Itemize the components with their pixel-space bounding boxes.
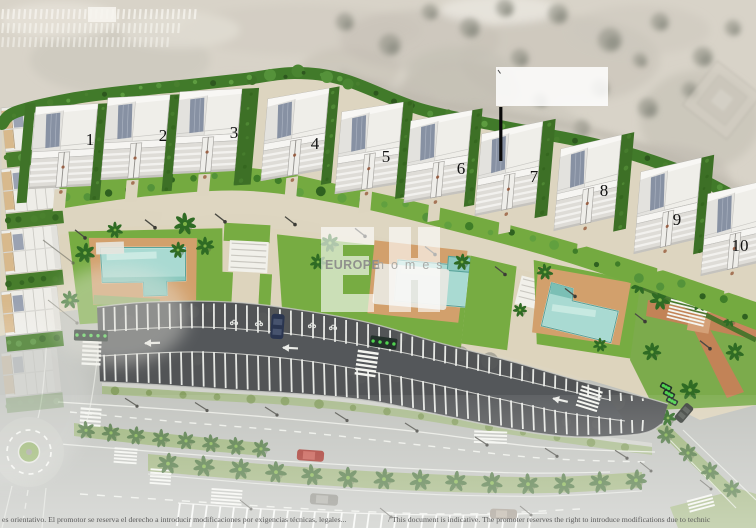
svg-text:EUROPE: EUROPE	[325, 258, 380, 272]
svg-text:5: 5	[382, 147, 391, 166]
svg-text:9: 9	[673, 210, 682, 229]
svg-text:1: 1	[86, 130, 95, 149]
svg-text:8: 8	[600, 181, 609, 200]
svg-text:4: 4	[311, 134, 320, 153]
svg-text:6: 6	[457, 159, 466, 178]
svg-text:2: 2	[159, 126, 168, 145]
svg-text:homes: homes	[377, 258, 450, 272]
svg-text:10: 10	[732, 236, 749, 255]
svg-text:7: 7	[530, 167, 539, 186]
svg-text:3: 3	[230, 123, 239, 142]
